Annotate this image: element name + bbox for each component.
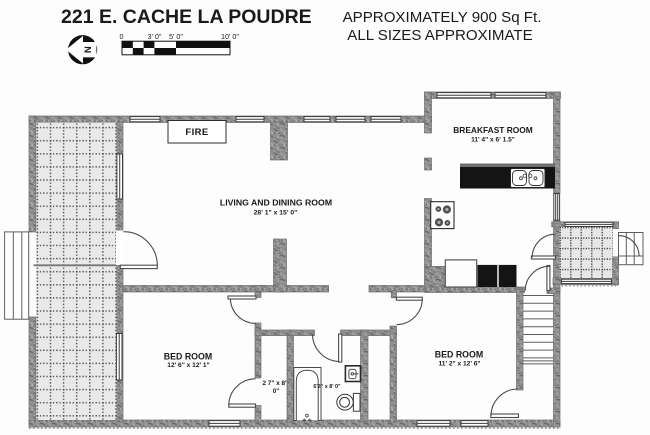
svg-text:0: 0	[120, 32, 124, 41]
svg-text:APPROXIMATELY 900 Sq Ft.: APPROXIMATELY 900 Sq Ft.	[343, 9, 542, 26]
svg-text:BED ROOM: BED ROOM	[164, 351, 212, 361]
svg-text:11' 2" x 12' 6": 11' 2" x 12' 6"	[438, 361, 480, 368]
svg-text:11' 4" x 6' 1.5": 11' 4" x 6' 1.5"	[471, 136, 515, 143]
svg-text:12' 6" x 12' 1": 12' 6" x 12' 1"	[167, 362, 209, 369]
svg-text:FIRE: FIRE	[185, 127, 208, 138]
svg-text:LIVING AND DINING ROOM: LIVING AND DINING ROOM	[220, 198, 332, 208]
svg-text:0": 0"	[273, 388, 280, 395]
svg-text:3' 0": 3' 0"	[148, 32, 162, 41]
svg-text:6'2" x 8' 0": 6'2" x 8' 0"	[313, 384, 341, 390]
svg-text:10' 0": 10' 0"	[221, 32, 239, 41]
svg-text:BREAKFAST ROOM: BREAKFAST ROOM	[453, 125, 533, 135]
svg-text:221 E. CACHE LA POUDRE: 221 E. CACHE LA POUDRE	[61, 6, 312, 28]
svg-text:2 7" x 8': 2 7" x 8'	[262, 380, 287, 387]
svg-text:N: N	[81, 46, 92, 53]
svg-text:28' 1" x 15' 0": 28' 1" x 15' 0"	[254, 210, 298, 217]
svg-text:BED ROOM: BED ROOM	[435, 349, 483, 359]
svg-text:ALL SIZES APPROXIMATE: ALL SIZES APPROXIMATE	[347, 27, 532, 44]
svg-text:5' 0": 5' 0"	[169, 32, 183, 41]
